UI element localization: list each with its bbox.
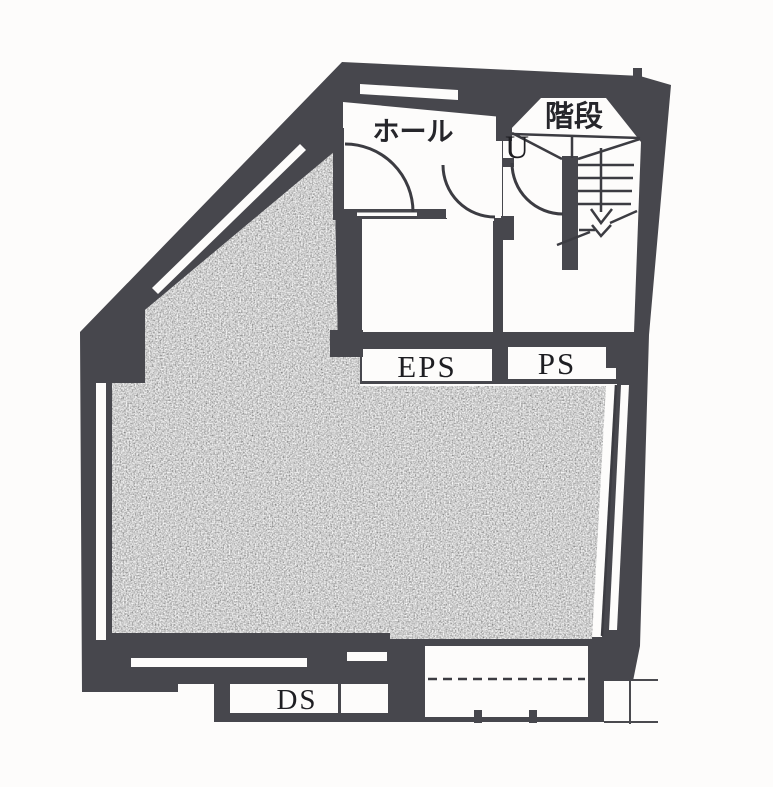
top-wall-tick bbox=[633, 68, 642, 79]
ds-label: DS bbox=[276, 684, 317, 716]
floor-plan-canvas: ホール 階段 U EPS PS DS bbox=[0, 0, 773, 787]
ps-label: PS bbox=[538, 346, 576, 381]
stair-lower-stub bbox=[501, 216, 514, 240]
left-window-slit bbox=[96, 383, 106, 640]
hall-label: ホール bbox=[373, 117, 454, 147]
bottom-small-slit bbox=[347, 652, 387, 661]
ds-divider bbox=[338, 684, 341, 713]
anteroom-left-wall bbox=[339, 213, 362, 333]
stair-core-wall bbox=[562, 156, 578, 270]
bottom-window-slit bbox=[131, 658, 307, 667]
entrance-area bbox=[425, 646, 588, 717]
anteroom bbox=[360, 219, 493, 332]
entrance-tick-1 bbox=[474, 710, 482, 723]
door-leaf-inner-line bbox=[357, 213, 417, 217]
bottom-step-block bbox=[305, 638, 347, 678]
stairs-up-label: U bbox=[505, 130, 531, 166]
ps-shaft-notch bbox=[605, 368, 616, 379]
stairs-label: 階段 bbox=[545, 99, 603, 133]
entrance-tick-2 bbox=[529, 710, 537, 723]
eps-label: EPS bbox=[397, 349, 456, 384]
bottom-notch bbox=[178, 684, 214, 723]
hall-left-wall bbox=[333, 128, 344, 220]
floor-plan: ホール 階段 U EPS PS DS bbox=[0, 0, 773, 787]
wall-block bbox=[330, 330, 363, 357]
